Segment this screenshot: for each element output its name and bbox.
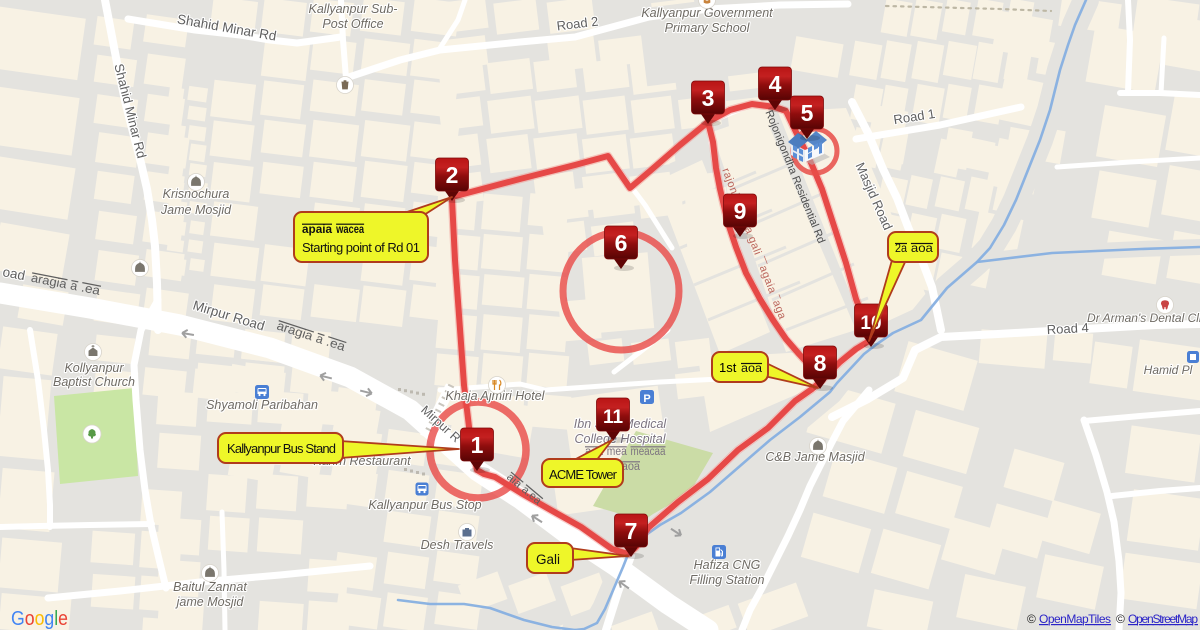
svg-text:ACME Tower: ACME Tower: [549, 467, 618, 482]
svg-text:Kallyanpur Bus Stop: Kallyanpur Bus Stop: [368, 498, 481, 512]
svg-text:Hamid Pl: Hamid Pl: [1144, 363, 1193, 377]
svg-text:4: 4: [769, 71, 782, 97]
svg-text:©: ©: [1027, 612, 1036, 626]
svg-text:Gali: Gali: [536, 552, 560, 567]
svg-text:Baitul Zannat: Baitul Zannat: [173, 580, 247, 594]
svg-text:wacea: wacea: [335, 222, 364, 236]
svg-text:Post Office: Post Office: [322, 17, 383, 31]
svg-text:Road 4: Road 4: [1046, 320, 1089, 337]
svg-text:OpenMapTiles: OpenMapTiles: [1039, 612, 1111, 626]
svg-text:aoa: aoa: [741, 361, 762, 375]
svg-text:Kollyanpur: Kollyanpur: [64, 361, 124, 375]
svg-text:Shyamoli Paribahan: Shyamoli Paribahan: [206, 398, 318, 412]
svg-text:Hafiza CNG: Hafiza CNG: [694, 558, 761, 572]
svg-text:Kallyanpur Sub-: Kallyanpur Sub-: [309, 2, 398, 16]
svg-text:7: 7: [625, 518, 638, 544]
svg-text:P: P: [643, 393, 650, 405]
svg-text:Starting point of Rd 01: Starting point of Rd 01: [302, 240, 420, 255]
svg-text:2a: 2a: [895, 241, 907, 255]
svg-text:6: 6: [615, 230, 628, 256]
svg-text:1st: 1st: [719, 360, 737, 375]
svg-text:5: 5: [801, 100, 814, 126]
svg-text:2: 2: [446, 162, 459, 188]
svg-text:1: 1: [471, 432, 484, 458]
svg-text:11: 11: [603, 407, 624, 428]
svg-text:8: 8: [814, 350, 827, 376]
svg-text:Jame Mosjid: Jame Mosjid: [160, 203, 232, 217]
svg-text:Google: Google: [11, 607, 68, 630]
svg-text:9: 9: [734, 198, 747, 224]
svg-text:mea: mea: [607, 446, 628, 458]
svg-text:3: 3: [702, 85, 715, 111]
svg-text:Filling Station: Filling Station: [689, 573, 764, 587]
svg-text:Primary School: Primary School: [665, 21, 751, 35]
svg-text:meacaa: meacaa: [631, 446, 667, 458]
svg-text:Kallyanpur Bus Stand: Kallyanpur Bus Stand: [227, 441, 336, 456]
svg-text:Desh Travels: Desh Travels: [421, 538, 494, 552]
svg-text:aoa: aoa: [911, 241, 933, 255]
svg-text:OpenStreetMap: OpenStreetMap: [1128, 612, 1198, 626]
svg-text:jame Mosjid: jame Mosjid: [175, 595, 245, 609]
svg-text:©: ©: [1116, 612, 1125, 626]
svg-text:apaia: apaia: [302, 222, 332, 236]
svg-text:Baptist Church: Baptist Church: [53, 375, 135, 389]
svg-text:Dr Arman's Dental Clinic: Dr Arman's Dental Clinic: [1087, 311, 1200, 325]
